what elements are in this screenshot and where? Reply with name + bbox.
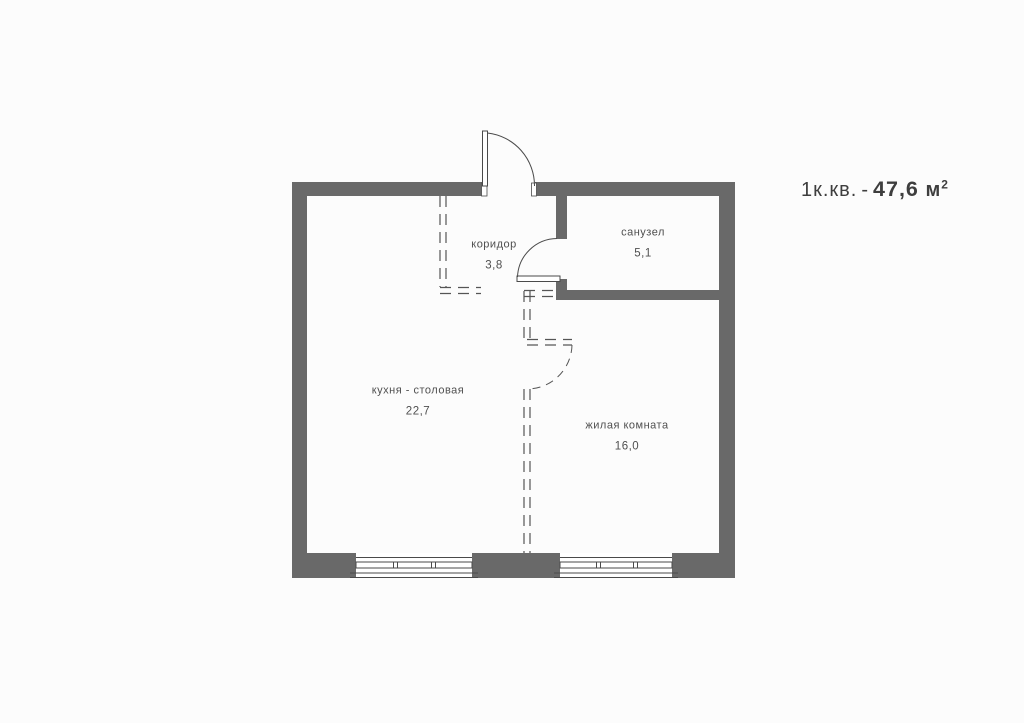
floorplan-drawing [0, 0, 1024, 723]
kitchen-window-opening [356, 553, 472, 578]
room-label-kitchen-dining: кухня - столовая 22,7 [372, 385, 465, 418]
wall-bottom-center-pier [472, 553, 560, 578]
living-room-window [554, 553, 678, 578]
bathroom-door [517, 239, 560, 282]
entrance-door [482, 131, 537, 196]
entrance-door-swing-arc [488, 133, 535, 186]
room-label-bathroom: санузел 5,1 [621, 227, 665, 260]
wall-bottom-right-segment [672, 553, 719, 578]
entrance-door-leaf [483, 131, 488, 186]
room-area: 5,1 [621, 248, 665, 260]
wall-top-right-segment [535, 182, 719, 196]
wall-bottom-left-segment [307, 553, 356, 578]
bathroom-wall-bottom [556, 290, 719, 300]
room-area: 3,8 [471, 260, 516, 272]
room-name: кухня - столовая [372, 385, 465, 397]
room-name: жилая комната [585, 420, 668, 432]
bathroom-wall-left-upper [556, 196, 567, 239]
wall-right [719, 182, 735, 578]
room-name: санузел [621, 227, 665, 239]
room-area: 22,7 [372, 406, 465, 418]
bathroom-door-leaf [517, 276, 560, 282]
room-label-living-room: жилая комната 16,0 [585, 420, 668, 453]
wall-top-left-segment [307, 182, 482, 196]
living-room-window-opening [560, 553, 672, 578]
wall-left [292, 182, 307, 578]
bathroom-door-swing-arc [518, 239, 558, 278]
floorplan-page: 1к.кв.-47,6 м2 [0, 0, 1024, 723]
future-door-swing-arc [528, 345, 572, 389]
room-name: коридор [471, 239, 516, 251]
kitchen-window [350, 553, 478, 578]
room-label-corridor: коридор 3,8 [471, 239, 516, 272]
kitchen-living-dashed-partition [524, 291, 572, 554]
room-area: 16,0 [585, 441, 668, 453]
